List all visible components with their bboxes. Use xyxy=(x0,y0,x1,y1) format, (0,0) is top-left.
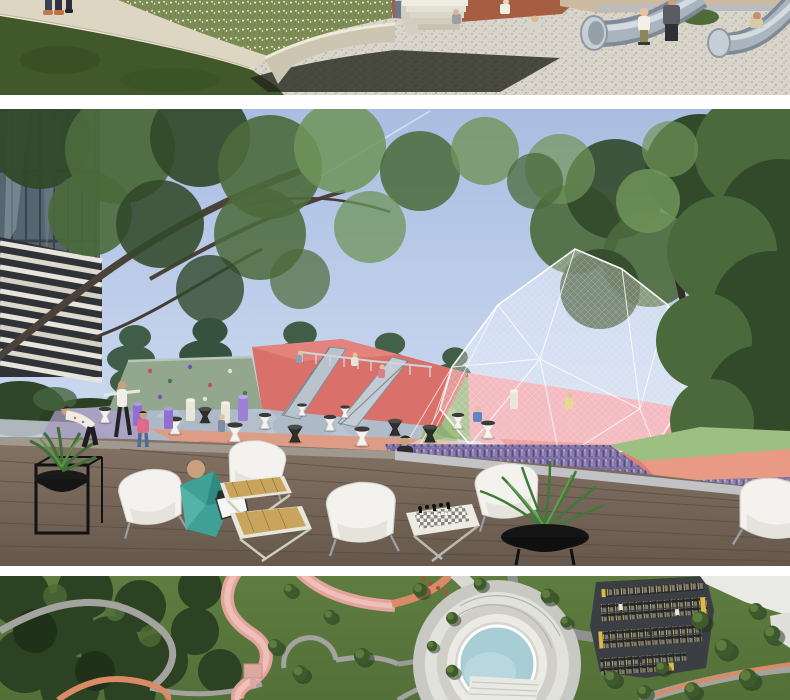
gallery-image-plaza xyxy=(0,109,790,566)
gallery-image-masterplan xyxy=(0,576,790,700)
gallery-scroll xyxy=(0,0,790,700)
gallery-gap xyxy=(0,566,790,576)
louvers xyxy=(0,237,102,381)
masterplan-illustration xyxy=(0,576,790,700)
sandpit-illustration xyxy=(0,0,790,95)
gallery-image-sandpit xyxy=(0,0,790,95)
plaza-illustration xyxy=(0,109,790,566)
gallery-gap xyxy=(0,95,790,109)
